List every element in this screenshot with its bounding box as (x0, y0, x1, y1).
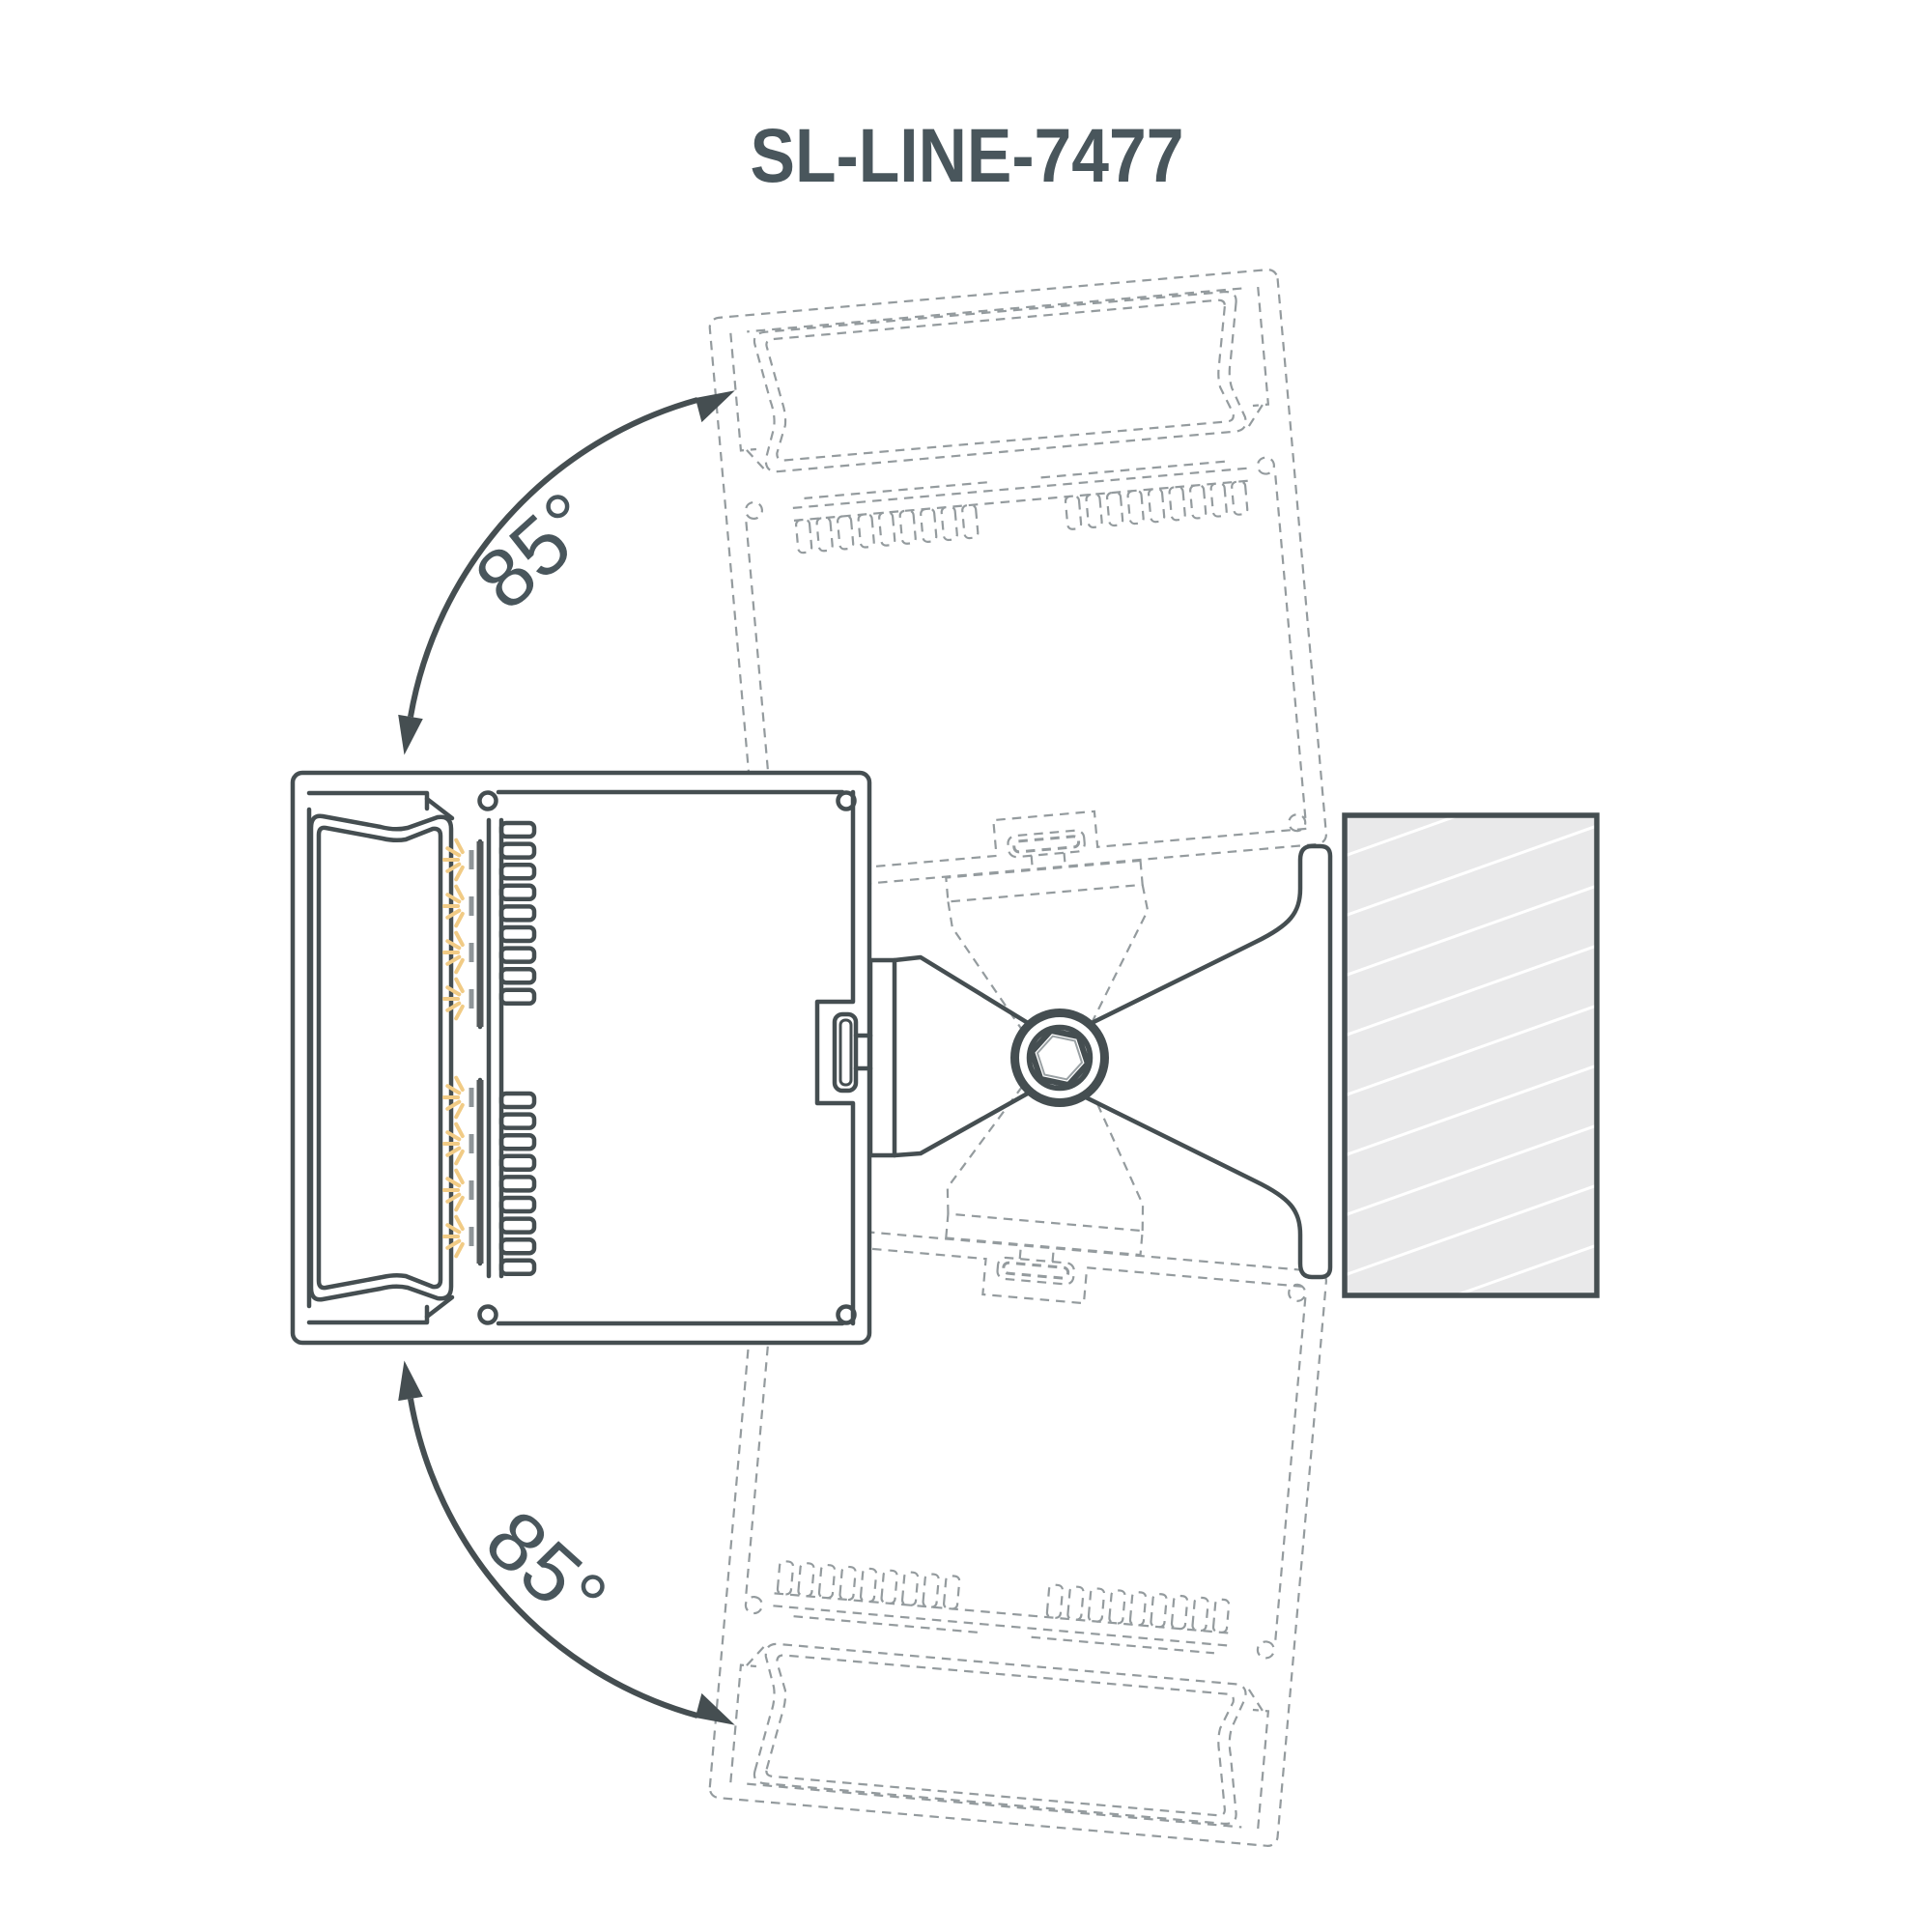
svg-text:SL-LINE-7477: SL-LINE-7477 (751, 112, 1184, 198)
